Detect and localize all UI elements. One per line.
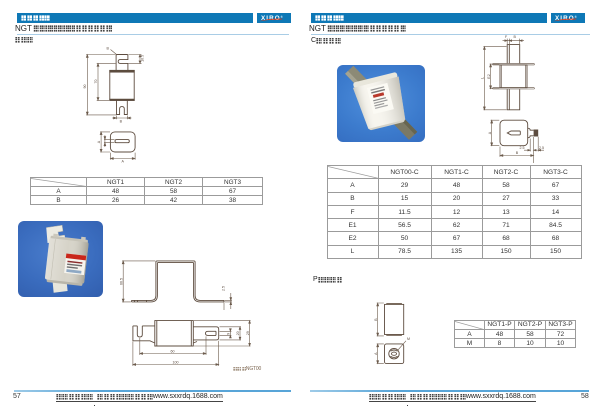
svg-text:20: 20 [236,331,240,335]
svg-text:90: 90 [83,85,87,89]
svg-text:2.5: 2.5 [520,146,525,150]
svg-text:A: A [121,160,124,164]
svg-text:2.5: 2.5 [539,146,544,150]
svg-text:L: L [480,77,484,79]
svg-text:F: F [505,35,508,39]
svg-text:B: B [120,120,123,124]
svg-text:100: 100 [173,360,179,364]
svg-text:70: 70 [94,80,98,84]
svg-text:2.5: 2.5 [221,286,225,291]
svg-text:9: 9 [227,333,231,335]
svg-text:60: 60 [171,349,175,353]
svg-text:10.5: 10.5 [141,55,145,62]
svg-text:A: A [374,352,378,355]
svg-text:B: B [514,35,517,39]
svg-text:66.5: 66.5 [119,278,123,285]
svg-text:M: M [407,337,410,341]
svg-text:29: 29 [246,331,250,335]
svg-text:B: B [107,47,110,51]
svg-text:B: B [374,318,378,321]
svg-text:A: A [488,131,492,134]
svg-text:E2: E2 [487,74,491,78]
svg-text:B: B [516,151,519,155]
svg-text:A: A [97,140,101,143]
